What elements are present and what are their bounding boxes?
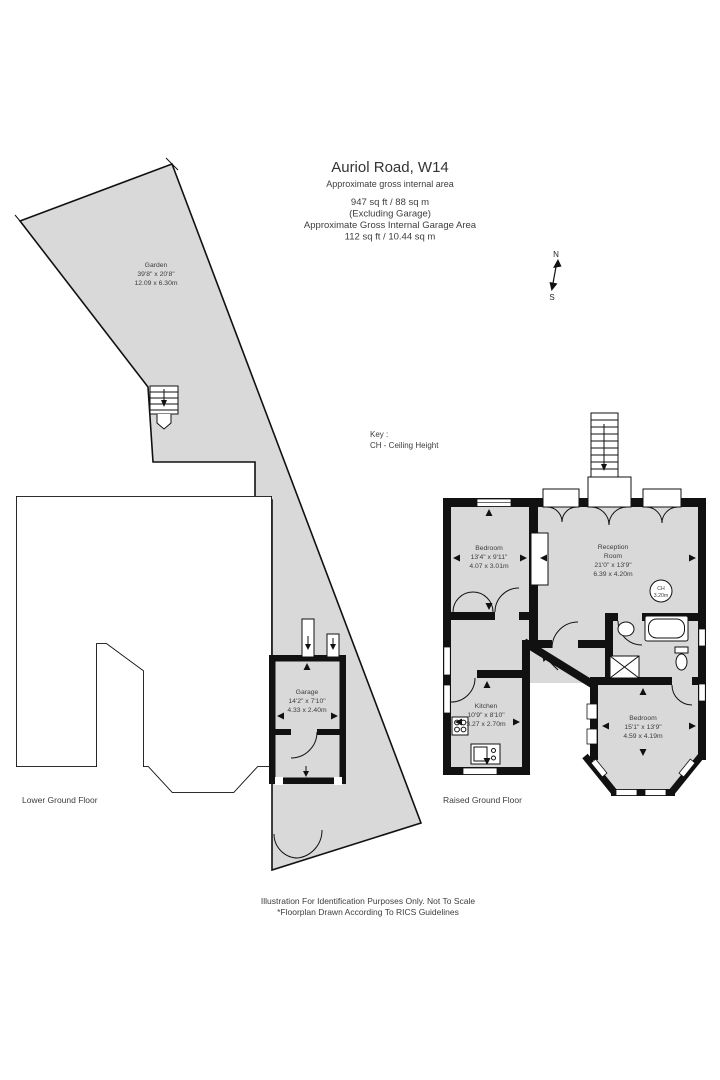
garden-metric: 12.09 x 6.30m — [134, 280, 177, 287]
garden-imperial: 39'8" x 20'8" — [137, 271, 175, 278]
wall-bed2-left — [590, 683, 598, 760]
compass: N S — [549, 250, 561, 302]
floorplan-page: CH 3.20m N S Auriol Road, W14 Approximat… — [0, 0, 720, 1080]
disclaimer-line1: Illustration For Identification Purposes… — [261, 896, 475, 906]
raised-ground-floor-label: Raised Ground Floor — [443, 795, 522, 805]
bedroom1-imperial: 13'4" x 9'11" — [471, 554, 508, 561]
bedroom1-metric: 4.07 x 3.01m — [469, 563, 509, 570]
garage-opening-left — [275, 777, 283, 785]
internal-area-value: 947 sq ft / 88 sq m — [351, 197, 429, 208]
bathroom-sink — [618, 622, 634, 636]
key-heading: Key : — [370, 430, 388, 439]
building-outline-inner — [18, 498, 270, 791]
toilet-cistern — [675, 647, 688, 653]
bedroom2-name: Bedroom — [629, 715, 657, 722]
bedroom2-imperial: 15'1" x 13'9" — [624, 724, 662, 731]
page-title: Auriol Road, W14 — [331, 159, 449, 176]
bedroom1-name: Bedroom — [475, 545, 503, 552]
raised-ground-floor-plan: CH 3.20m — [443, 413, 706, 796]
garage-interior — [276, 662, 340, 778]
floorplan-canvas: CH 3.20m N S Auriol Road, W14 Approximat… — [0, 0, 720, 1080]
bedroom2-metric: 4.59 x 4.19m — [623, 733, 663, 740]
garden-name: Garden — [145, 262, 168, 269]
footer-disclaimer: Illustration For Identification Purposes… — [261, 896, 475, 917]
lower-ground-floor-outline — [18, 498, 270, 791]
key-block: Key : CH - Ceiling Height — [370, 430, 439, 450]
reception-name-1: Reception — [598, 544, 629, 551]
ch-badge-line2: 3.20m — [654, 593, 668, 599]
garage-name: Garage — [296, 689, 319, 696]
reception-imperial: 21'0" x 13'9" — [594, 562, 632, 569]
garage-area-label: Approximate Gross Internal Garage Area — [304, 220, 477, 231]
reception-metric: 6.39 x 4.20m — [593, 571, 633, 578]
kitchen-imperial: 10'9" x 8'10" — [467, 712, 505, 719]
wall-kitchen-right — [522, 640, 530, 775]
compass-north-label: N — [553, 250, 559, 259]
entrance-porch — [588, 477, 631, 507]
disclaimer-line2: *Floorplan Drawn According To RICS Guide… — [277, 907, 459, 917]
garage-imperial: 14'2" x 7'10" — [288, 698, 326, 705]
compass-south-label: S — [549, 293, 554, 302]
garage-metric: 4.33 x 2.40m — [287, 707, 327, 714]
bathtub — [645, 616, 688, 641]
compass-north-arrowhead — [553, 259, 562, 268]
reception-name-2: Room — [604, 553, 622, 560]
excluding-garage-note: (Excluding Garage) — [349, 209, 431, 220]
garage-area-value: 112 sq ft / 10.44 sq m — [345, 232, 436, 243]
compass-south-arrowhead — [550, 282, 558, 291]
lower-ground-floor-label: Lower Ground Floor — [22, 795, 98, 805]
kitchen-name: Kitchen — [475, 703, 498, 710]
garage-door-gap — [291, 728, 317, 736]
ceiling-height-badge: CH 3.20m — [650, 580, 672, 602]
ch-badge-line1: CH — [657, 586, 665, 592]
entrance-stairs — [591, 413, 618, 478]
wall-left — [443, 498, 451, 775]
kitchen-metric: 3.27 x 2.70m — [466, 721, 506, 728]
title-block: Auriol Road, W14 Approximate gross inter… — [304, 159, 477, 243]
key-ceiling-height: CH - Ceiling Height — [370, 441, 439, 450]
garage-opening-right — [334, 777, 342, 785]
toilet-bowl — [676, 654, 687, 670]
title-subtitle: Approximate gross internal area — [326, 179, 454, 189]
